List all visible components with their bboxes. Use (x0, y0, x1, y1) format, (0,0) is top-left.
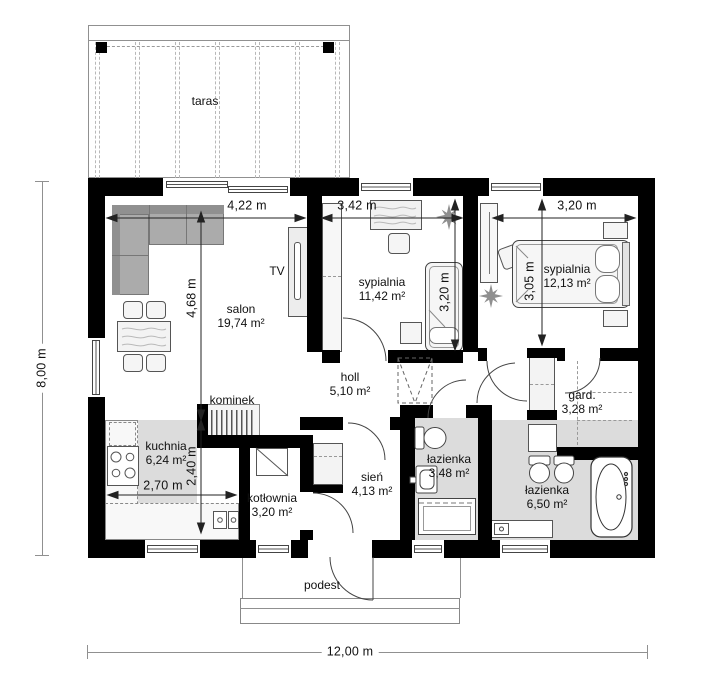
fridge (109, 422, 136, 446)
wall-boiler-sien (300, 530, 313, 540)
dim-sypialnia1-height: 3,20 m (438, 272, 453, 311)
bed2-pillow (595, 275, 620, 303)
desk-chair-bedroom1 (388, 233, 410, 254)
dim-sypialnia1-width: 3,42 m (337, 199, 376, 214)
fireplace-hatch (211, 410, 254, 437)
stove (107, 446, 139, 486)
bed1-pillow (429, 327, 459, 344)
dim-kuchnia-height: 2,40 m (185, 446, 200, 485)
wardrobe-sien-dash (314, 456, 342, 457)
wall-corridor-bathroom (478, 405, 492, 540)
plant-icon (477, 282, 504, 309)
boiler (256, 448, 288, 476)
terrace-roof-edge (88, 40, 350, 41)
terrace-deck-line (135, 42, 140, 178)
bed2-pillow (595, 245, 620, 273)
bed2-headboard (622, 242, 630, 306)
wall-sien-bathroom-small (400, 418, 415, 540)
terrace-door-glazing (166, 181, 228, 188)
room-area: 3,28 m² (562, 402, 603, 416)
wall-under-fireplace (197, 435, 310, 448)
dim-text: 8,00 m (35, 343, 49, 392)
wardrobe-bedroom1 (322, 203, 342, 352)
kitchen-sink-basin (228, 511, 239, 529)
window-bathroom-big-glazing (502, 545, 548, 553)
terrace-deck-line (255, 42, 260, 178)
room-area: 12,13 m² (543, 276, 590, 290)
room-area: 3,20 m² (247, 505, 297, 519)
room-label-lazienka-duza: łazienka 6,50 m² (525, 483, 569, 511)
door-arc-sien (348, 423, 385, 460)
dim-kuchnia-width: 2,70 m (143, 479, 182, 494)
terrace-door-glazing (228, 186, 288, 193)
entrance-door-opening (308, 540, 372, 558)
room-label-kotlownia: kotłownia 3,20 m² (247, 491, 297, 519)
window-bedroom2-glazing (491, 183, 541, 191)
door-arc-bathroom-big (477, 363, 515, 403)
desk-bedroom1 (370, 200, 422, 230)
bathroom-cabinet (528, 424, 557, 452)
washer-inner (423, 506, 471, 531)
dim-text: 12,00 m (322, 645, 379, 659)
wall-bedroom1-bedroom2 (463, 196, 478, 352)
room-name: gard. (562, 388, 603, 402)
door-arc-boiler (313, 493, 353, 533)
room-label-holl: holl 5,10 m² (330, 370, 371, 398)
sofa-cushion-line (149, 205, 150, 245)
wardrobe-dash (323, 276, 341, 277)
plant-icon (434, 202, 463, 231)
room-label-sypialnia2: sypialnia 12,13 m² (543, 262, 590, 290)
wall-right (638, 178, 655, 558)
dining-chair (146, 354, 166, 372)
wardrobe-corridor-cap (527, 410, 557, 420)
terrace-post (323, 42, 334, 53)
kitchen-sink-basin (213, 511, 227, 529)
wall-bedroom2-holl (478, 348, 487, 361)
door-arc-bedroom2 (487, 361, 527, 401)
gard-shelf-line (577, 420, 632, 421)
room-label-sypialnia1: sypialnia 11,42 m² (359, 275, 406, 303)
wall-gard-bathroom (557, 447, 638, 460)
nightstand-bedroom2 (603, 310, 628, 327)
room-name: kotłownia (247, 491, 297, 505)
window-kitchen-glazing (147, 545, 198, 553)
dining-table (117, 321, 171, 352)
dim-salon-height: 4,68 m (185, 278, 200, 317)
tv-screen (294, 242, 301, 300)
wall-holl-sien (300, 417, 343, 430)
room-name: kuchnia (145, 439, 186, 453)
wall-holl-sien (390, 417, 400, 430)
room-name: sypialnia (359, 275, 406, 289)
wall-holl-bathroom-small (466, 405, 478, 418)
room-name: sień (352, 470, 393, 484)
dim-sypialnia2-width: 3,20 m (557, 199, 596, 214)
room-area: 6,50 m² (525, 497, 569, 511)
wardrobe2-handle (489, 212, 490, 274)
room-label-salon: salon 19,74 m² (217, 302, 264, 330)
dim-total-width: 12,00 m (322, 645, 379, 660)
room-area: 4,13 m² (352, 484, 393, 498)
counter-sink (494, 523, 509, 535)
room-name: łazienka (427, 452, 471, 466)
podest-side-line (242, 558, 243, 598)
wardrobe-sien-cap (313, 485, 343, 493)
door-arc-bathroom-small (428, 380, 466, 418)
sofa-cushion-line (186, 205, 187, 245)
dining-chair (146, 301, 166, 319)
room-name: sypialnia (543, 262, 590, 276)
window-boiler-glazing (258, 545, 289, 553)
room-label-garderoba: gard. 3,28 m² (562, 388, 603, 416)
podest-step-line (240, 608, 460, 609)
terrace-deck-line (295, 42, 300, 178)
wall-bedroom1-holl (322, 350, 340, 363)
room-area: 5,10 m² (330, 384, 371, 398)
label-taras: taras (192, 94, 219, 108)
wall-holl-bathroom-small (400, 405, 433, 418)
terrace-post (96, 42, 107, 53)
dim-total-height: 8,00 m (35, 343, 50, 392)
terrace-beam-line (97, 46, 334, 47)
wall-boiler-sien (300, 435, 313, 492)
room-label-sien: sień 4,13 m² (352, 470, 393, 498)
room-area: 3,48 m² (427, 466, 471, 480)
room-label-lazienka-mala: łazienka 3,48 m² (427, 452, 471, 480)
dim-salon-width: 4,22 m (227, 199, 266, 214)
label-tv: TV (269, 264, 284, 278)
label-kominek: kominek (210, 393, 255, 407)
wardrobe-corridor-dash (530, 384, 554, 385)
podest-side-line (460, 558, 461, 598)
wall-salon-bedroom1 (307, 196, 322, 352)
wall-bedroom2-gard (600, 348, 638, 361)
room-area: 11,42 m² (359, 289, 406, 303)
dim-tick (647, 645, 648, 659)
wall-bedroom2-gard (557, 348, 565, 361)
floor-plan: taras salon 19,74 m² TV sypialnia 11,42 … (0, 0, 702, 691)
nightstand-bedroom1 (400, 322, 422, 344)
window-bathroom-small-glazing (414, 545, 442, 553)
terrace-deck-line (335, 42, 340, 178)
door-arc-bedroom1 (343, 318, 386, 361)
sofa-back (112, 205, 224, 214)
window-bedroom1-glazing (361, 183, 411, 191)
room-area: 6,24 m² (145, 453, 186, 467)
dim-tick (35, 555, 49, 556)
terrace-deck-line (215, 42, 220, 178)
room-label-kuchnia: kuchnia 6,24 m² (145, 439, 186, 467)
wardrobe-corridor-cap (527, 348, 557, 358)
terrace-deck-line (95, 42, 100, 178)
sofa-cushion-line (112, 255, 149, 256)
attic-ladder (398, 358, 432, 403)
window-salon-left-glazing (92, 340, 100, 395)
dim-tick (87, 645, 88, 659)
label-podest: podest (304, 578, 340, 592)
room-name: łazienka (525, 483, 569, 497)
wardrobe-sien (313, 443, 343, 485)
dining-chair (123, 301, 143, 319)
terrace-deck-line (175, 42, 180, 178)
dining-chair (123, 354, 143, 372)
room-name: salon (217, 302, 264, 316)
nightstand-bedroom2 (603, 222, 628, 239)
dim-sypialnia2-height: 3,05 m (523, 261, 538, 300)
room-name: holl (330, 370, 371, 384)
room-area: 19,74 m² (217, 316, 264, 330)
podest-steps (240, 598, 460, 624)
dim-tick (35, 181, 49, 182)
wall-bedroom1-holl (388, 350, 463, 363)
